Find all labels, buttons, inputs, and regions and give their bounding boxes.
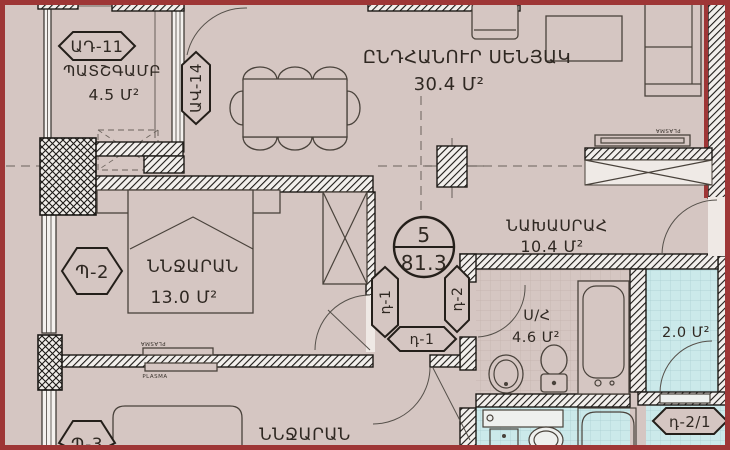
counter	[483, 410, 563, 427]
tv-plasma	[143, 348, 213, 355]
entry-opening	[708, 197, 727, 256]
floor-plan-drawing: PLASMA PLASMA PLASMA	[0, 0, 730, 450]
wall-bath-left	[460, 337, 476, 370]
wall-balcony-step	[144, 156, 184, 173]
apartment-number: 5	[417, 223, 430, 247]
svg-text:դ-2: դ-2	[450, 287, 466, 312]
svg-text:Պ-2: Պ-2	[75, 262, 109, 283]
bathroom-area: 4.6 Մ²	[512, 330, 560, 346]
wall-bath-bottom	[476, 394, 630, 407]
column-left	[38, 335, 62, 390]
bathtub	[578, 281, 629, 394]
tv-niche	[585, 160, 712, 185]
floor-plan: PLASMA PLASMA PLASMA	[0, 0, 730, 450]
bed	[113, 406, 242, 450]
svg-text:ԱԴ-11: ԱԴ-11	[71, 37, 124, 56]
bedroom2-window	[42, 390, 56, 448]
tv-label: PLASMA	[655, 127, 680, 133]
tv-label: PLASMA	[140, 340, 165, 346]
hallway-name: ՆԱԽԱՍՐԱՀ	[506, 216, 607, 235]
apartment-badge: 5 81.3	[394, 217, 454, 277]
tv-plasma	[145, 363, 217, 371]
living-name: ԸՆԴՀԱՆՈՒՐ ՍԵՆՅԱԿ	[363, 47, 571, 68]
svg-text:դ-1: դ-1	[410, 332, 435, 348]
dining-set	[230, 67, 360, 150]
hallway-area: 10.4 Մ²	[520, 237, 583, 256]
storage-area: 2.0 Մ²	[662, 325, 710, 341]
column-center	[437, 146, 467, 187]
toilet-bowl	[541, 345, 567, 375]
storage-door-leaf	[660, 394, 710, 403]
wall-tv	[585, 148, 712, 160]
wall-balcony-bottom	[95, 142, 183, 156]
dining-table	[243, 79, 347, 137]
bedroom1-area: 13.0 Մ²	[150, 288, 217, 308]
wall-bath-left	[460, 408, 476, 450]
wall-stub	[430, 355, 460, 367]
tv-stand	[595, 135, 690, 146]
bathroom-name: Ս/Հ	[523, 308, 550, 324]
armchair	[472, 3, 518, 39]
bedroom2-name: ՆՆՋԱՐԱՆ	[259, 425, 351, 445]
balcony-name: ՊԱՏՇԳԱՄԲ	[63, 62, 161, 80]
apartment-total-area: 81.3	[401, 251, 448, 275]
svg-text:ԱՎ-14: ԱՎ-14	[187, 63, 205, 113]
wall-bath-storage	[630, 269, 646, 392]
bedroom1-name: ՆՆՋԱՐԱՆ	[147, 257, 239, 277]
living-area: 30.4 Մ²	[414, 74, 485, 95]
svg-text:դ-1: դ-1	[378, 290, 394, 315]
wall-hall-bath	[460, 254, 718, 269]
tv-label: PLASMA	[142, 374, 167, 380]
bedroom1-window	[42, 215, 56, 333]
balcony-area: 4.5 Մ²	[88, 86, 139, 104]
column-corner	[40, 138, 96, 215]
svg-text:դ-2/1: դ-2/1	[669, 413, 711, 431]
